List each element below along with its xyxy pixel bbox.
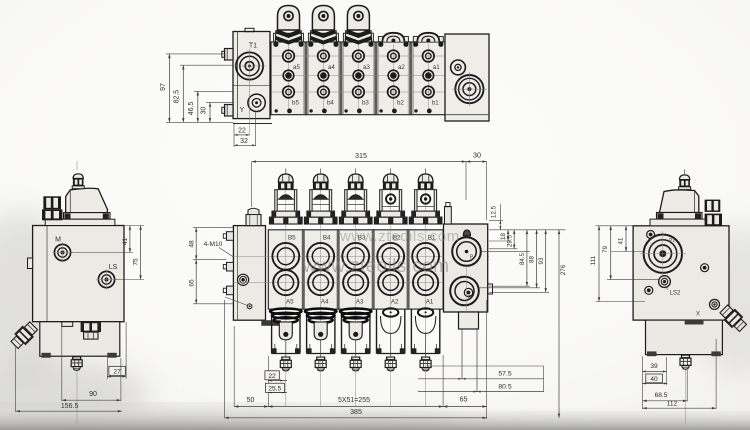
svg-text:46.5: 46.5 [188,101,195,115]
svg-text:b1: b1 [432,100,439,107]
svg-text:29.5: 29.5 [506,234,513,247]
svg-text:B4: B4 [323,235,331,242]
svg-text:a3: a3 [363,64,370,71]
svg-text:48: 48 [188,240,195,248]
svg-text:www.zteoils.com: www.zteoils.com [339,228,460,245]
svg-text:25.5: 25.5 [268,386,281,393]
svg-text:40: 40 [650,376,658,383]
svg-text:93: 93 [538,257,545,264]
svg-text:112: 112 [667,400,678,407]
svg-text:www.zteoils.com: www.zteoils.com [302,256,449,277]
svg-text:b2: b2 [397,100,404,107]
svg-text:75: 75 [133,258,140,266]
svg-text:P1: P1 [669,238,675,244]
svg-text:84.5: 84.5 [519,252,526,265]
svg-text:50: 50 [247,397,255,404]
svg-text:a2: a2 [398,64,405,71]
svg-text:LS: LS [109,264,118,271]
svg-text:80.5: 80.5 [498,384,511,391]
svg-text:41: 41 [122,238,129,246]
svg-text:A1: A1 [426,299,434,306]
svg-text:a4: a4 [328,64,335,71]
svg-text:a1: a1 [433,64,440,71]
svg-text:4-M10: 4-M10 [204,241,223,248]
svg-text:22: 22 [238,127,246,134]
svg-text:27: 27 [113,369,121,376]
svg-text:30: 30 [473,151,481,160]
svg-text:X: X [696,312,700,318]
svg-text:B5: B5 [288,235,296,242]
svg-text:90: 90 [89,391,97,398]
svg-text:LS2: LS2 [670,291,681,297]
svg-text:65: 65 [188,279,195,287]
svg-text:A5: A5 [286,299,294,306]
svg-text:Y: Y [240,107,245,114]
svg-text:39: 39 [650,363,658,370]
svg-text:79: 79 [602,246,609,253]
svg-text:P: P [470,255,474,261]
svg-text:97: 97 [160,83,167,91]
svg-text:M: M [55,237,61,244]
svg-text:315: 315 [355,151,367,160]
svg-text:b5: b5 [292,100,299,107]
svg-text:22: 22 [268,373,276,380]
svg-text:111: 111 [590,255,597,265]
svg-text:a5: a5 [293,64,300,71]
svg-text:5X51=255: 5X51=255 [338,397,370,404]
svg-text:b4: b4 [327,100,334,107]
svg-text:88: 88 [529,256,536,263]
svg-text:A2: A2 [391,299,399,306]
svg-text:41: 41 [618,237,625,244]
svg-text:385: 385 [350,409,362,416]
svg-text:b3: b3 [362,100,369,107]
svg-text:65: 65 [460,397,468,404]
svg-text:57.5: 57.5 [498,371,511,378]
svg-text:12.5: 12.5 [491,205,498,218]
svg-text:A3: A3 [356,299,364,306]
svg-text:68.5: 68.5 [655,392,668,399]
svg-text:32: 32 [240,138,248,145]
svg-text:82.5: 82.5 [174,90,181,104]
svg-text:156.5: 156.5 [61,403,79,410]
svg-text:276: 276 [560,264,567,275]
svg-text:A4: A4 [321,299,329,306]
svg-text:T1: T1 [249,43,257,50]
svg-text:30: 30 [200,107,207,115]
